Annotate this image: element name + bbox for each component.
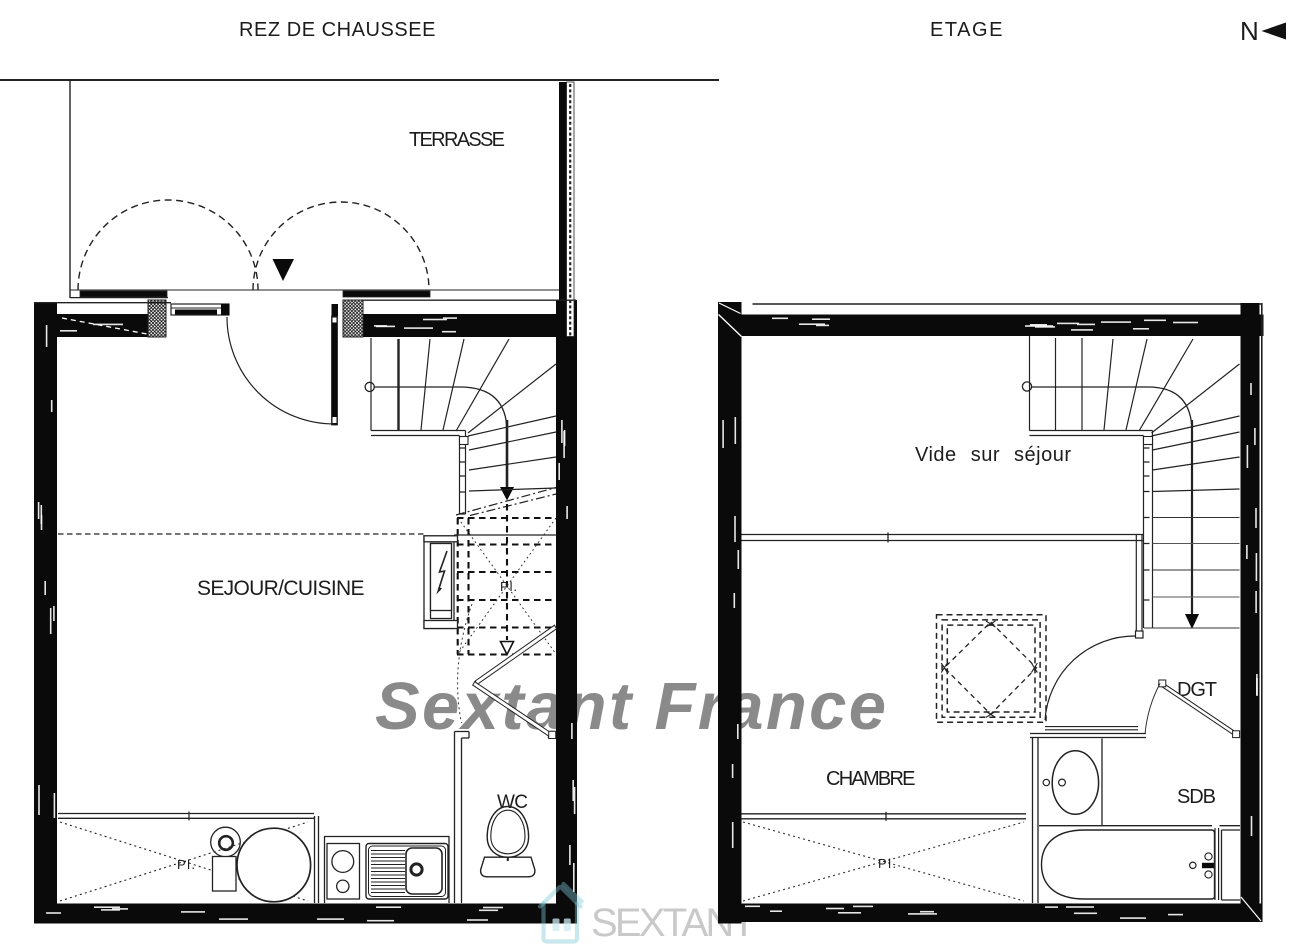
svg-text:REZ DE CHAUSSEE: REZ DE CHAUSSEE (239, 19, 437, 41)
svg-text:ETAGE: ETAGE (930, 19, 1004, 41)
svg-text:Vide sur séjour: Vide sur séjour (915, 444, 1071, 466)
svg-text:Pl.: Pl. (500, 579, 517, 594)
svg-text:SDB: SDB (1177, 786, 1216, 808)
svg-text:CHAMBRE: CHAMBRE (826, 768, 916, 790)
svg-text:TERRASSE: TERRASSE (409, 129, 506, 151)
svg-text:WC: WC (497, 792, 528, 813)
svg-text:N: N (1240, 16, 1259, 46)
svg-text:Sextant France: Sextant France (375, 669, 887, 744)
svg-text:SEJOUR/CUISINE: SEJOUR/CUISINE (197, 577, 365, 600)
